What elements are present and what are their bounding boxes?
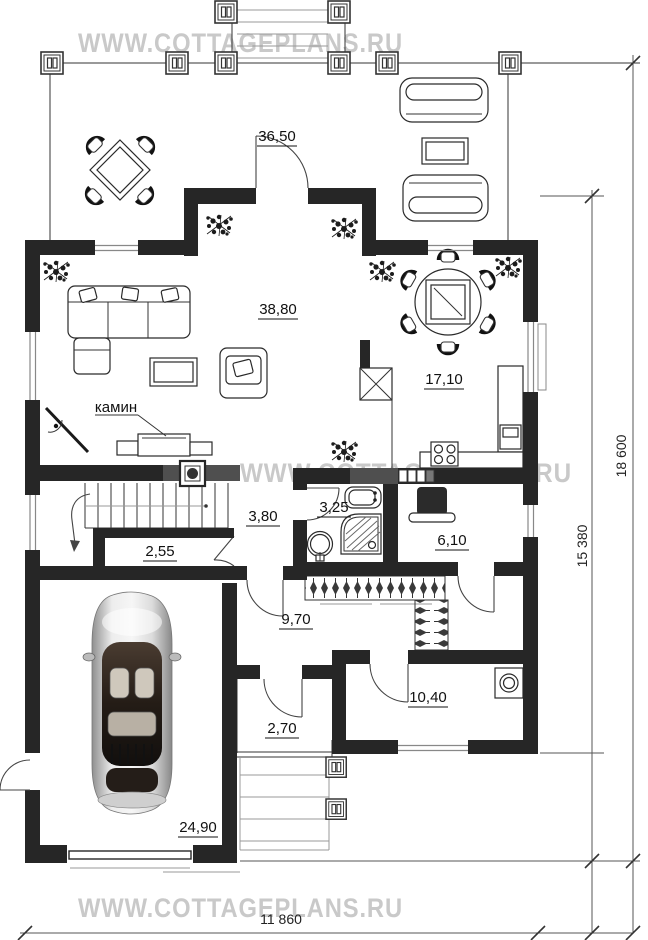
vent-shaft: [360, 368, 392, 468]
chair-icon: [84, 134, 105, 155]
room-area-kitchen-dining: 17,10: [425, 371, 463, 388]
chair-icon: [399, 314, 418, 335]
room-area-garage: 24,90: [179, 819, 217, 836]
plant-icon: [495, 257, 522, 278]
terrace-dining-set: [83, 134, 156, 206]
fireplace-label: камин: [95, 399, 137, 416]
column-icon: [328, 1, 350, 23]
floor-plan-page: WWW.COTTAGEPLANS.RU WWW.COTTAGEPLANS.RU …: [0, 0, 648, 940]
armchair: [220, 348, 267, 398]
room-area-closet: 2,55: [145, 543, 174, 560]
stove: [431, 442, 458, 466]
column-icon: [328, 52, 350, 74]
bathtub: [345, 487, 381, 508]
porch-door: [264, 679, 302, 717]
chair-icon: [439, 342, 457, 353]
garage-side-door: [0, 760, 30, 790]
chimney-icon: [180, 461, 205, 486]
fireplace-leader-line: [95, 415, 166, 436]
terrace-sofa-bottom: [403, 175, 488, 221]
column-icon: [41, 52, 63, 74]
terrace-coffee-table: [422, 138, 468, 164]
shower: [341, 514, 381, 554]
car-mirror: [169, 653, 181, 661]
car-mirror: [83, 653, 95, 661]
room-area-utility-room: 10,40: [409, 689, 447, 706]
column-icon: [499, 52, 521, 74]
plant-icon: [43, 261, 70, 282]
bathroom-sink: [308, 532, 333, 562]
room-area-living-room: 38,80: [259, 301, 297, 318]
room-area-bathroom: 3,25: [319, 499, 348, 516]
chair-icon: [478, 314, 497, 335]
garage-door: [69, 851, 191, 859]
utility-room-door: [370, 664, 408, 702]
car: [83, 592, 181, 814]
chair-icon: [135, 186, 156, 207]
room-area-entry-porch: 2,70: [267, 720, 296, 737]
watermark-bottom: WWW.COTTAGEPLANS.RU: [78, 893, 403, 923]
plant-icon: [369, 261, 396, 282]
watermark-top: WWW.COTTAGEPLANS.RU: [78, 28, 403, 58]
under-stairs-closet-door: [214, 536, 234, 566]
terrace-sofa-top: [400, 78, 488, 122]
floor-plan-drawing: WWW.COTTAGEPLANS.RU WWW.COTTAGEPLANS.RU …: [0, 0, 648, 940]
chair-icon: [478, 269, 497, 290]
column-icon: [215, 52, 237, 74]
chair-icon: [83, 186, 104, 207]
dining-table-set: [399, 251, 496, 353]
column-icon: [376, 52, 398, 74]
boiler-room-door: [458, 576, 494, 612]
dimension-width: 11 860: [260, 911, 302, 927]
dimension-overall-depth: 18 600: [613, 434, 629, 477]
boiler: [409, 487, 455, 522]
room-area-stair-hall: 3,80: [248, 508, 277, 525]
hall-to-hallway-door: [247, 580, 283, 616]
wardrobe-vertical: [415, 600, 448, 650]
room-area-boiler-room: 6,10: [437, 532, 466, 549]
chair-icon: [136, 134, 157, 155]
stairs-direction-arrow: [72, 494, 90, 544]
railing-column-icon: [326, 799, 346, 819]
room-area-hallway: 9,70: [281, 611, 310, 628]
column-icon: [166, 52, 188, 74]
chair-icon: [439, 251, 457, 262]
railing-column-icon: [326, 757, 346, 777]
dimension-house-depth: 15 380: [574, 524, 590, 567]
plant-icon: [331, 218, 358, 239]
plant-icon: [206, 215, 233, 236]
washing-machine: [495, 668, 523, 698]
column-icon: [215, 1, 237, 23]
chair-icon: [399, 269, 418, 290]
coffee-table: [150, 358, 197, 386]
room-area-terrace: 36,50: [258, 128, 296, 145]
